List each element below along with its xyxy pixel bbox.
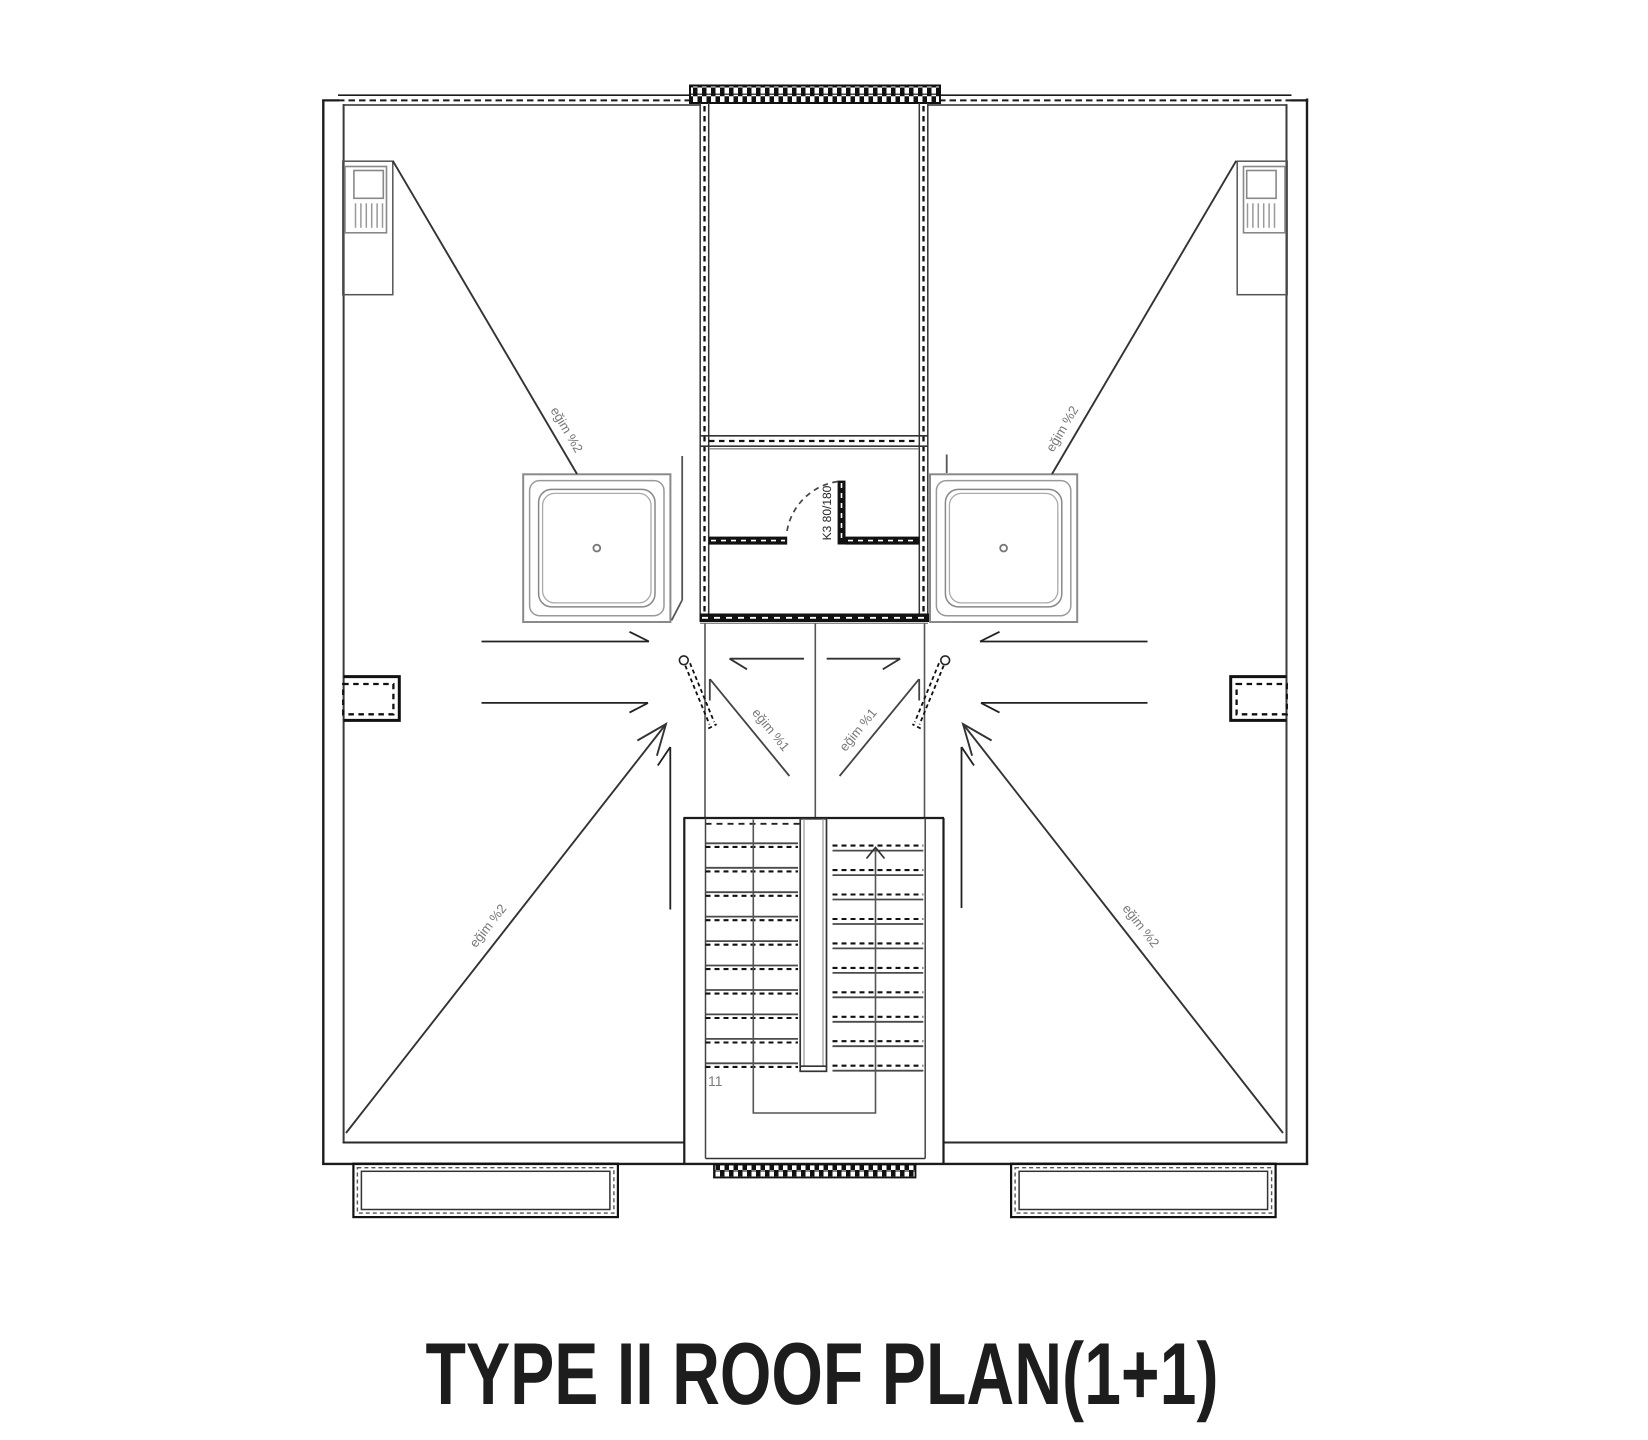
svg-text:TYPE II ROOF PLAN(1+1): TYPE II ROOF PLAN(1+1) — [426, 1324, 1219, 1423]
svg-text:K3 80/180: K3 80/180 — [820, 485, 834, 540]
svg-text:11: 11 — [708, 1073, 723, 1089]
